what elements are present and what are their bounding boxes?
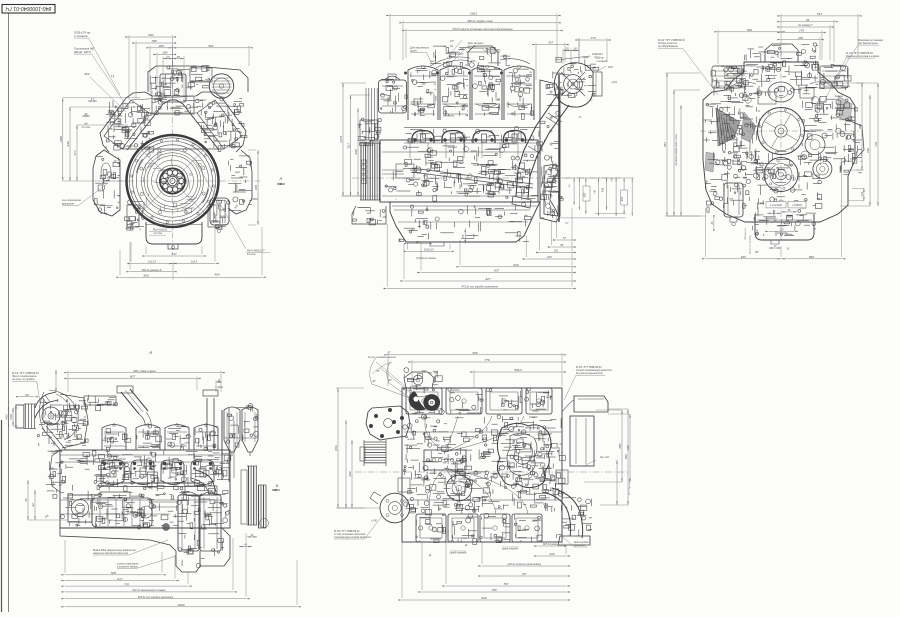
svg-text:б4: б4 xyxy=(806,18,810,22)
svg-text:16: 16 xyxy=(573,47,577,51)
svg-text:#10(3х12: #10(3х12 xyxy=(592,52,603,56)
svg-text:Лба: Лба xyxy=(334,445,338,452)
svg-text:927: 927 xyxy=(485,277,490,281)
svg-text:505: 505 xyxy=(111,571,116,575)
svg-text:807: 807 xyxy=(130,375,135,379)
svg-text:1061: 1061 xyxy=(470,12,477,16)
svg-text:27: 27 xyxy=(387,350,391,354)
svg-text:70°: 70° xyxy=(376,370,380,373)
svg-text:12 отв: 12 отв xyxy=(247,253,256,256)
svg-text:ПЛЧ2х1,5-б: ПЛЧ2х1,5-б xyxy=(745,227,747,240)
svg-text:958: 958 xyxy=(472,351,477,355)
svg-text:598: 598 xyxy=(354,149,358,154)
svg-text:РЫЧ-ЗМ0х1,77: РЫЧ-ЗМ0х1,77 xyxy=(247,250,265,253)
svg-text:щупа: щупа xyxy=(410,50,417,53)
svg-text:2 отв М22: 2 отв М22 xyxy=(769,204,783,207)
svg-text:790 до размер Ф: 790 до размер Ф xyxy=(141,268,161,272)
svg-text:376: 376 xyxy=(799,29,804,33)
svg-text:2К: 2К xyxy=(415,240,419,244)
svg-text:до оси установки вентил: до оси установки вентил xyxy=(368,356,397,359)
svg-text:#4П: #4П xyxy=(608,65,613,69)
svg-text:свлкв плюсккб: свлкв плюсккб xyxy=(502,548,519,551)
svg-text:2х2,4: 2х2,4 xyxy=(190,260,198,264)
svg-text:(70: (70 xyxy=(522,572,527,576)
svg-text:990 до трубы слива: 990 до трубы слива xyxy=(467,19,493,23)
svg-text:+1Л0: +1Л0 xyxy=(371,520,377,523)
svg-text:#90: #90 xyxy=(9,414,13,419)
svg-text:973 до оси коробки крепления: 973 до оси коробки крепления xyxy=(461,285,498,289)
svg-text:2060: 2060 xyxy=(177,603,185,607)
svg-text:600: 600 xyxy=(84,72,89,76)
svg-text:Ф20: Ф20 xyxy=(252,197,258,201)
svg-text:260: 260 xyxy=(158,44,164,48)
svg-text:377: 377 xyxy=(73,150,77,155)
svg-text:617: 617 xyxy=(117,577,122,581)
svg-text:842 до маховичного товаре: 842 до маховичного товаре xyxy=(133,589,167,592)
svg-text:92: 92 xyxy=(31,503,35,507)
svg-text:617: 617 xyxy=(347,143,351,148)
svg-text:15: 15 xyxy=(565,47,569,51)
svg-text:90°: 90° xyxy=(755,250,759,254)
svg-text:закрытия масляного фильтра: закрытия масляного фильтра xyxy=(92,552,129,555)
svg-text:Бо 1 Пар спорн: Бо 1 Пар спорн xyxy=(629,478,631,494)
svg-text:178: 178 xyxy=(590,36,595,40)
svg-text:-918: -918 xyxy=(546,255,552,259)
svg-text:776: 776 xyxy=(484,358,489,362)
svg-text:358: 358 xyxy=(798,36,803,40)
svg-text:2 (б4М7): 2 (б4М7) xyxy=(791,204,802,207)
svg-text:517: 517 xyxy=(817,12,822,16)
svg-text:А: А xyxy=(279,176,283,181)
svg-text:Д: Д xyxy=(217,378,220,382)
svg-text:вращения: вращения xyxy=(62,202,74,205)
svg-text:398: 398 xyxy=(152,39,157,43)
svg-text:770: 770 xyxy=(124,582,129,586)
svg-text:б25 до реме: б25 до реме xyxy=(543,543,558,546)
svg-text:42: 42 xyxy=(24,498,28,502)
svg-text:980: 980 xyxy=(143,273,148,277)
svg-text:46°: 46° xyxy=(372,380,376,383)
svg-text:-178: -178 xyxy=(861,191,864,197)
svg-text:640: 640 xyxy=(513,263,518,267)
svg-text:1085: 1085 xyxy=(59,136,63,143)
svg-text:масла: масла xyxy=(468,45,476,48)
svg-text:Л87: Л87 xyxy=(618,443,622,450)
svg-text:температуры охлажд жидкости: температуры охлажд жидкости xyxy=(334,536,372,539)
svg-text:промывки: промывки xyxy=(574,544,586,547)
svg-text:38: 38 xyxy=(176,55,180,59)
svg-text:на оборудование: на оборудование xyxy=(658,45,678,48)
svg-text:560: 560 xyxy=(747,28,752,32)
svg-text:свлкб тангаба: свлкб тангаба xyxy=(450,552,467,555)
svg-text:460: 460 xyxy=(858,124,862,129)
svg-text:2х13,5: 2х13,5 xyxy=(147,260,157,264)
svg-text:Ф33: Ф33 xyxy=(621,196,624,201)
svg-text:А(б): А(б) xyxy=(602,188,605,194)
svg-text:Давление топлива в клапан: Давление топлива в клапан xyxy=(845,55,880,58)
svg-text:220: 220 xyxy=(548,552,554,556)
svg-text:907: 907 xyxy=(494,269,499,273)
svg-text:с50: с50 xyxy=(866,148,870,153)
svg-text:435: 435 xyxy=(254,185,258,190)
svg-text:(Венд. МРЧ: (Венд. МРЧ xyxy=(74,50,92,54)
svg-text:10°: 10° xyxy=(450,39,454,43)
svg-text:Трубка не показана: Трубка не показана xyxy=(750,235,752,254)
svg-text:767: 767 xyxy=(503,582,508,586)
svg-text:12 отв: 12 отв xyxy=(154,232,163,235)
svg-text:при данном реле: при данном реле xyxy=(858,42,878,45)
svg-text:630: 630 xyxy=(741,255,746,259)
svg-text:767: 767 xyxy=(548,41,553,45)
svg-text:1 шланга: 1 шланга xyxy=(74,34,88,38)
svg-text:на хово, со требов: на хово, со требов xyxy=(12,378,35,381)
svg-text:с уливного найвив: с уливного найвив xyxy=(117,566,138,569)
svg-text:570 до места установки датчика: 570 до места установки датчика температу… xyxy=(452,27,512,31)
svg-text:4(а +2Л: 4(а +2Л xyxy=(600,456,609,459)
svg-text:М22х13: М22х13 xyxy=(424,248,434,252)
svg-text:Л2: Л2 xyxy=(589,99,594,102)
svg-text:Ф25: Ф25 xyxy=(584,192,587,197)
svg-text:947: 947 xyxy=(171,252,176,256)
svg-text:Г-Г: Г-Г xyxy=(565,221,569,225)
svg-text:РЫЧ 6х6х25: РЫЧ 6х6х25 xyxy=(153,229,168,232)
svg-text:+4(7): +4(7) xyxy=(611,80,617,84)
svg-text:В утеплительный боче: В утеплительный боче xyxy=(576,372,603,375)
svg-text:20°: 20° xyxy=(459,47,464,51)
svg-text:65: 65 xyxy=(25,393,29,397)
svg-text:16°: 16° xyxy=(388,379,392,382)
svg-text:+(05 до отметки реме водяне: +(05 до отметки реме водяне xyxy=(507,563,542,566)
svg-text:ПМД-пр: ПМД-пр xyxy=(594,56,604,60)
svg-text:925 до оси коробки крепления: 925 до оси коробки крепления xyxy=(138,596,174,599)
svg-text:530: 530 xyxy=(148,33,153,37)
svg-text:220: 220 xyxy=(553,249,559,253)
svg-text:596,5: 596,5 xyxy=(514,368,522,372)
svg-text:Б: Б xyxy=(276,483,279,488)
svg-text:А: А xyxy=(148,350,152,355)
svg-text:776: 776 xyxy=(874,142,878,147)
svg-text:503: 503 xyxy=(208,44,213,48)
svg-text:840-1000040-01 ГЧ: 840-1000040-01 ГЧ xyxy=(5,5,51,11)
svg-text:860: 860 xyxy=(809,255,814,259)
svg-text:Трубка не покаже: Трубка не покаже xyxy=(416,257,436,260)
svg-text:967: 967 xyxy=(663,142,667,147)
svg-text:690: 690 xyxy=(481,596,486,600)
svg-text:2Л2: 2Л2 xyxy=(348,471,352,478)
svg-text:560: 560 xyxy=(214,273,219,277)
svg-text:12 отв: 12 отв xyxy=(82,126,91,129)
svg-text:940: 940 xyxy=(66,141,70,146)
svg-text:о шланге: о шланге xyxy=(596,60,608,63)
svg-text:с 2фМ: с 2фМ xyxy=(215,386,222,389)
svg-text:27: 27 xyxy=(165,55,170,59)
svg-text:до размер 7: до размер 7 xyxy=(798,23,813,27)
svg-text:до резин отвода воды 3 отв: до резин отвода воды 3 отв xyxy=(675,134,678,166)
svg-text:180: 180 xyxy=(624,454,628,459)
svg-text:9(2: 9(2 xyxy=(428,371,432,375)
svg-text:#б2: #б2 xyxy=(5,414,9,419)
svg-text:196: 196 xyxy=(779,229,784,232)
svg-text:780: 780 xyxy=(491,588,496,592)
svg-text:809 с двев спарен: 809 с двев спарен xyxy=(133,369,156,373)
svg-text:1073: 1073 xyxy=(339,136,343,143)
svg-text:Слив масла: Слив масла xyxy=(473,163,488,167)
